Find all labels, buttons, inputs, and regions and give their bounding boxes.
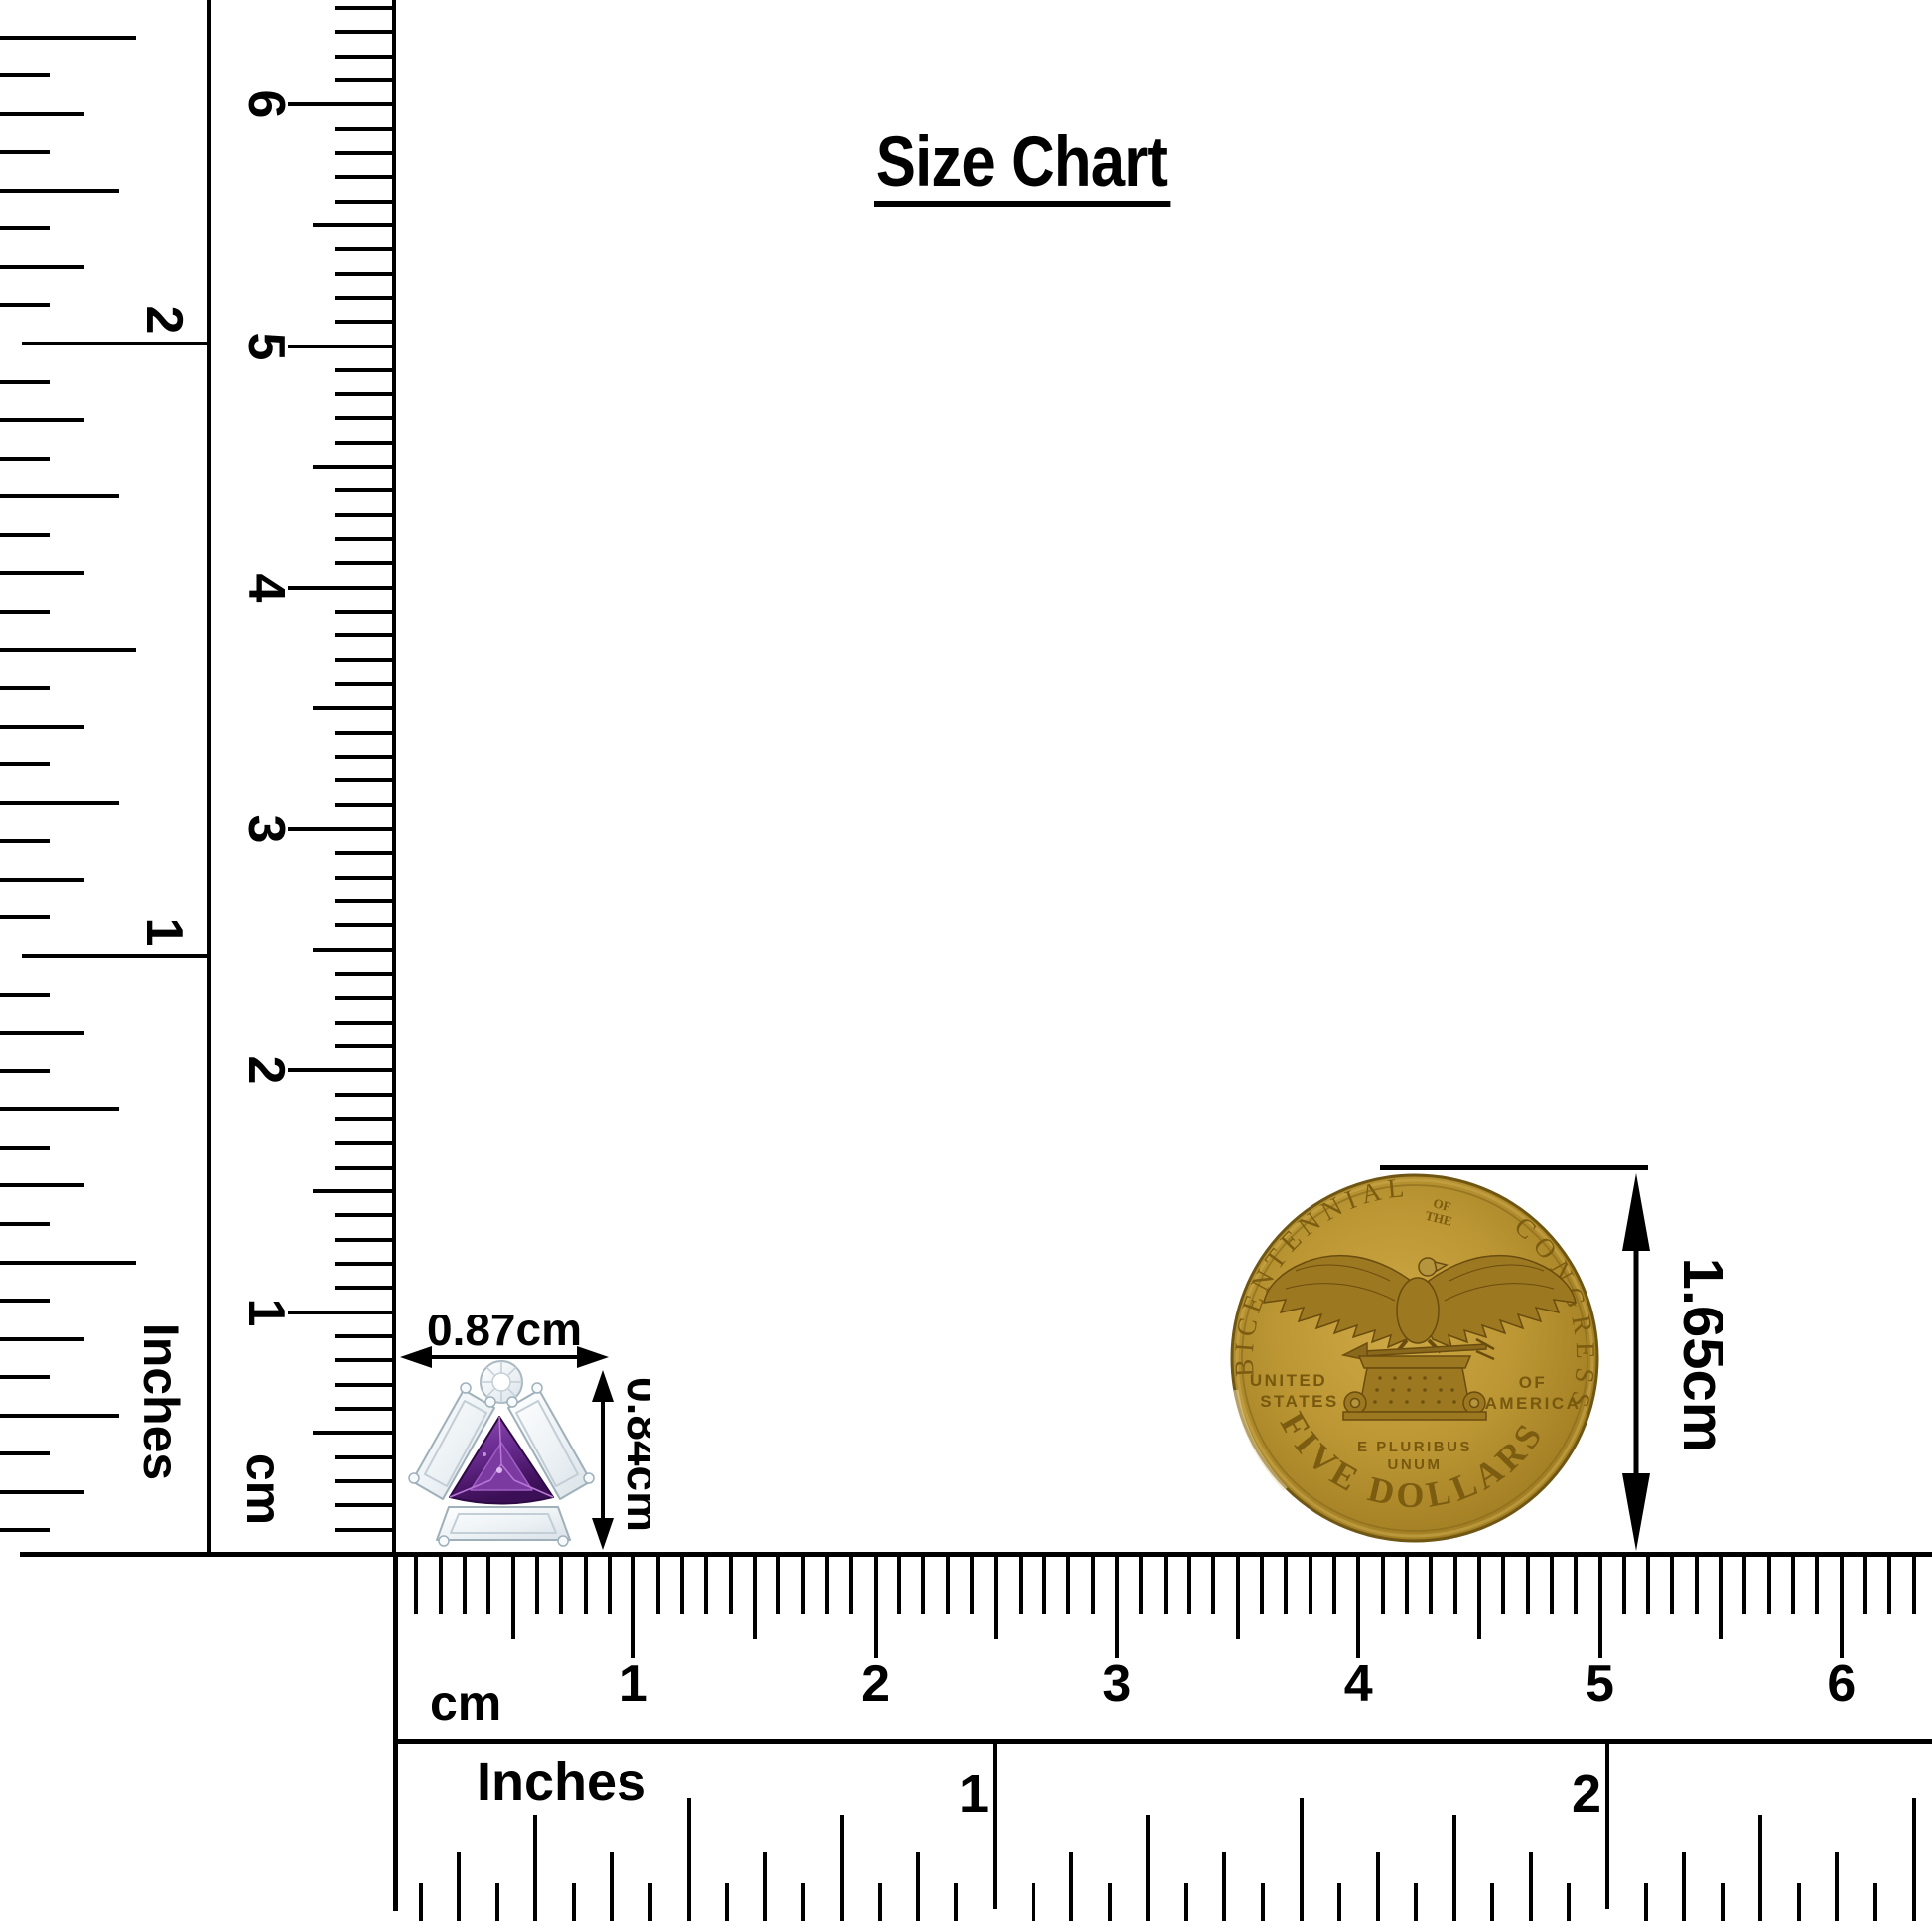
ruler-tick	[0, 226, 50, 230]
ruler-tick	[1767, 1557, 1771, 1614]
ruler-tick	[1108, 1883, 1112, 1921]
ruler-tick	[1742, 1557, 1746, 1614]
ruler-tick	[335, 755, 396, 759]
ruler-tick	[0, 839, 50, 843]
round-diamond-stone	[481, 1361, 522, 1403]
ruler-tick	[1873, 1883, 1877, 1921]
ruler-bottom-inches-unit-label: Inches	[477, 1755, 646, 1809]
coin-height-label: 1.65cm	[1671, 1258, 1723, 1453]
size-chart-page: { "title": { "text": "Size Chart" }, "ru…	[0, 0, 1932, 1932]
ruler-tick	[335, 247, 396, 251]
ruler-tick	[1146, 1815, 1150, 1921]
ruler-tick	[288, 827, 396, 831]
svg-text:E PLURIBUS: E PLURIBUS	[1357, 1439, 1472, 1455]
ruler-tick	[335, 876, 396, 880]
ruler-tick	[335, 778, 396, 782]
ruler-tick	[1682, 1852, 1686, 1921]
ruler-tick	[0, 1414, 119, 1418]
ruler-tick	[1863, 1557, 1867, 1614]
ruler-tick	[0, 878, 84, 882]
ruler-tick	[687, 1798, 691, 1921]
ruler-tick	[0, 1146, 50, 1150]
ruler-tick	[1622, 1557, 1626, 1614]
ruler-tick	[1526, 1557, 1530, 1614]
ruler-tick	[1644, 1883, 1648, 1921]
ruler-tick	[0, 265, 84, 269]
ruler-tick	[335, 1093, 396, 1097]
ruler-tick	[801, 1557, 805, 1614]
ruler-number: 6	[1827, 1658, 1856, 1710]
earring-height-dimension-arrow	[592, 1370, 614, 1550]
ruler-tick	[1032, 1883, 1035, 1921]
ruler-tick	[916, 1852, 920, 1921]
ruler-tick	[335, 513, 396, 517]
ruler-tick	[1529, 1852, 1533, 1921]
earring-width-label: 0.87cm	[427, 1315, 582, 1355]
ruler-tick	[680, 1557, 684, 1614]
ruler-tick	[335, 368, 396, 372]
ruler-tick	[1719, 1557, 1723, 1639]
ruler-tick	[335, 658, 396, 662]
ruler-tick	[0, 915, 50, 919]
ruler-tick	[335, 561, 396, 565]
ruler-tick	[1184, 1883, 1188, 1921]
ruler-tick	[1835, 1852, 1839, 1921]
ruler-tick	[335, 899, 396, 903]
ruler-tick	[313, 223, 396, 227]
ruler-left-cm: cm 123456	[211, 0, 396, 1564]
ruler-tick	[1695, 1557, 1699, 1614]
ruler-tick	[313, 465, 396, 469]
ruler-tick	[486, 1557, 490, 1614]
ruler-tick	[1429, 1557, 1433, 1614]
ruler-number: 4	[240, 573, 292, 602]
ruler-tick	[533, 1815, 537, 1921]
ruler-tick	[648, 1883, 652, 1921]
ruler-tick	[610, 1852, 614, 1921]
ruler-tick	[946, 1557, 950, 1614]
gold-coin: BICENTENNIAL CONGRESS OF THE FIVE DOLLAR…	[1229, 1173, 1601, 1541]
svg-text:STATES: STATES	[1260, 1392, 1339, 1411]
ruler-number: 4	[1344, 1658, 1373, 1710]
ruler-tick	[335, 441, 396, 445]
ruler-tick	[840, 1815, 844, 1921]
ruler-tick	[1550, 1557, 1554, 1614]
ruler-tick	[0, 1375, 50, 1379]
ruler-tick	[993, 1739, 997, 1909]
ruler-tick	[335, 272, 396, 276]
ruler-tick	[1284, 1557, 1288, 1614]
ruler-tick	[1887, 1557, 1891, 1614]
ruler-left-inches-unit-label: Inches	[136, 1323, 186, 1480]
ruler-tick	[1356, 1557, 1360, 1658]
ruler-tick	[288, 102, 396, 106]
ruler-tick	[0, 150, 50, 154]
ruler-tick	[849, 1557, 853, 1614]
ruler-tick	[1309, 1557, 1312, 1614]
ruler-tick	[1477, 1557, 1481, 1639]
ruler-tick	[1300, 1798, 1304, 1921]
ruler-tick	[572, 1883, 576, 1921]
ruler-tick	[0, 801, 119, 805]
ruler-tick	[0, 610, 50, 614]
ruler-tick	[0, 648, 136, 652]
ruler-tick	[0, 1183, 84, 1187]
ruler-tick	[878, 1883, 882, 1921]
ruler-tick	[0, 457, 50, 461]
ruler-tick	[495, 1883, 499, 1921]
ruler-tick	[1815, 1557, 1819, 1614]
ruler-tick	[608, 1557, 612, 1614]
ruler-tick	[335, 127, 396, 131]
ruler-tick	[0, 1299, 50, 1303]
ruler-tick	[1501, 1557, 1505, 1614]
ruler-tick	[335, 1141, 396, 1145]
ruler-tick	[763, 1852, 767, 1921]
ruler-tick	[335, 633, 396, 637]
ruler-tick	[335, 1044, 396, 1048]
ruler-tick	[335, 55, 396, 59]
ruler-tick	[1721, 1883, 1725, 1921]
ruler-tick	[0, 1528, 50, 1532]
ruler-tick	[335, 151, 396, 155]
ruler-tick	[0, 1222, 50, 1226]
ruler-tick	[335, 200, 396, 204]
ruler-tick	[0, 1107, 119, 1111]
ruler-tick	[1670, 1557, 1674, 1614]
ruler-number: 2	[240, 1056, 292, 1085]
ruler-tick	[0, 1069, 50, 1073]
ruler-tick	[584, 1557, 588, 1614]
ruler-tick	[1381, 1557, 1385, 1614]
earring-stones	[409, 1361, 594, 1546]
ruler-tick	[0, 73, 50, 77]
ruler-tick	[335, 923, 396, 927]
ruler-tick	[0, 1261, 136, 1265]
ruler-tick	[1490, 1883, 1494, 1921]
ruler-tick	[704, 1557, 708, 1614]
ruler-tick	[1912, 1798, 1916, 1921]
coin-figure: BICENTENNIAL CONGRESS OF THE FIVE DOLLAR…	[1226, 1162, 1723, 1559]
ruler-number: 2	[861, 1658, 890, 1710]
ruler-tick	[874, 1557, 878, 1658]
ruler-tick	[0, 686, 50, 690]
ruler-tick	[1042, 1557, 1046, 1614]
ruler-tick	[1211, 1557, 1215, 1614]
ruler-tick	[825, 1557, 829, 1614]
ruler-tick	[335, 682, 396, 686]
ruler-tick	[1139, 1557, 1143, 1614]
ruler-tick	[1414, 1883, 1418, 1921]
ruler-bottom-cm-unit-label: cm	[430, 1678, 501, 1727]
ruler-tick	[1337, 1883, 1341, 1921]
ruler-tick	[801, 1883, 805, 1921]
ruler-tick	[954, 1883, 958, 1921]
ruler-tick	[1019, 1557, 1023, 1614]
ruler-number: 1	[959, 1767, 989, 1821]
ruler-tick	[1598, 1557, 1602, 1658]
svg-text:UNITED: UNITED	[1250, 1371, 1327, 1390]
ruler-tick	[288, 345, 396, 348]
ruler-left-cm-unit-label: cm	[239, 1453, 289, 1525]
ruler-tick	[1452, 1815, 1456, 1921]
ruler-tick	[0, 762, 50, 766]
ruler-tick	[335, 537, 396, 541]
ruler-tick	[335, 6, 396, 10]
ruler-tick	[335, 1262, 396, 1266]
ruler-tick	[0, 533, 50, 537]
ruler-bottom-inches: Inches 12	[395, 1739, 1932, 1932]
ruler-tick	[0, 1451, 50, 1455]
earring-figure: 0.87cm 0.84cm	[387, 1315, 650, 1554]
ruler-tick	[1376, 1852, 1380, 1921]
ruler-tick	[335, 1021, 396, 1025]
ruler-number: 5	[1586, 1658, 1614, 1710]
ruler-tick	[335, 1213, 396, 1217]
ruler-tick	[753, 1557, 757, 1639]
ruler-tick	[0, 1337, 84, 1341]
ruler-tick	[335, 1117, 396, 1121]
ruler-tick	[535, 1557, 539, 1614]
ruler-tick	[1115, 1557, 1119, 1658]
ruler-number: 5	[240, 332, 292, 360]
ruler-tick	[725, 1883, 729, 1921]
ruler-tick	[288, 1068, 396, 1072]
ruler-tick	[1791, 1557, 1795, 1614]
ruler-tick	[313, 1189, 396, 1193]
ruler-tick	[439, 1557, 443, 1614]
ruler-tick	[288, 1311, 396, 1314]
ruler-tick	[335, 851, 396, 855]
ruler-tick	[729, 1557, 733, 1614]
ruler-tick	[1091, 1557, 1095, 1614]
ruler-tick	[970, 1557, 974, 1614]
ruler-tick	[457, 1852, 461, 1921]
ruler-tick	[559, 1557, 563, 1614]
ruler-tick	[335, 175, 396, 179]
svg-text:OF: OF	[1519, 1373, 1548, 1392]
ruler-tick	[0, 1490, 84, 1494]
ruler-tick	[335, 1238, 396, 1242]
ruler-tick	[897, 1557, 901, 1614]
ruler-tick	[1574, 1557, 1578, 1614]
ruler-tick	[0, 494, 119, 498]
ruler-tick	[1646, 1557, 1650, 1614]
ruler-number: 1	[240, 1298, 292, 1326]
ruler-tick	[1605, 1739, 1609, 1909]
ruler-number: 3	[1102, 1658, 1131, 1710]
ruler-tick	[0, 303, 50, 307]
ruler-tick	[335, 416, 396, 420]
ruler-tick	[463, 1557, 467, 1614]
ruler-tick	[335, 972, 396, 976]
ruler-tick	[1260, 1557, 1264, 1614]
ruler-tick	[631, 1557, 635, 1658]
ruler-tick	[335, 731, 396, 735]
ruler-tick	[313, 948, 396, 952]
ruler-tick	[1405, 1557, 1409, 1614]
ruler-number: 1	[138, 918, 190, 947]
ruler-tick	[335, 296, 396, 300]
ruler-tick	[511, 1557, 515, 1639]
ruler-number: 3	[240, 815, 292, 844]
ruler-tick	[0, 112, 84, 116]
ruler-tick	[1797, 1883, 1801, 1921]
ruler-tick	[776, 1557, 780, 1614]
page-title: Size Chart	[874, 127, 1171, 207]
ruler-tick	[0, 725, 84, 729]
ruler-tick	[994, 1557, 998, 1639]
ruler-tick	[1187, 1557, 1191, 1614]
ruler-bottom-cm: cm 123456	[395, 1557, 1932, 1739]
ruler-tick	[22, 954, 209, 958]
ruler-number: 2	[1572, 1767, 1601, 1821]
ruler-tick	[1069, 1852, 1073, 1921]
ruler-tick	[335, 610, 396, 614]
ruler-tick	[1912, 1557, 1916, 1614]
ruler-tick	[1453, 1557, 1457, 1614]
bottom-baguette-stone	[437, 1507, 570, 1540]
ruler-left-inches: Inches 12	[0, 0, 215, 1564]
ruler-tick	[335, 803, 396, 807]
ruler-tick	[313, 706, 396, 710]
ruler-tick	[1332, 1557, 1336, 1614]
ruler-tick	[335, 1166, 396, 1170]
ruler-tick	[1222, 1852, 1226, 1921]
ruler-tick	[0, 380, 50, 384]
ruler-tick	[656, 1557, 660, 1614]
svg-text:AMERICA: AMERICA	[1485, 1394, 1582, 1413]
ruler-number: 1	[620, 1658, 648, 1710]
ruler-tick	[335, 488, 396, 492]
ruler-tick	[1840, 1557, 1844, 1658]
ruler-tick	[288, 586, 396, 590]
ruler-tick	[335, 30, 396, 34]
ruler-number: 6	[240, 90, 292, 119]
ruler-tick	[0, 36, 136, 40]
ruler-tick	[0, 418, 84, 422]
ruler-tick	[335, 78, 396, 82]
ruler-tick	[921, 1557, 925, 1614]
ruler-tick	[1567, 1883, 1571, 1921]
ruler-number: 2	[138, 306, 190, 335]
ruler-tick	[335, 320, 396, 324]
ruler-tick	[1164, 1557, 1168, 1614]
ruler-tick	[1066, 1557, 1070, 1614]
ruler-tick	[0, 993, 50, 997]
ruler-tick	[0, 571, 84, 575]
ruler-tick	[335, 1286, 396, 1290]
svg-text:UNUM: UNUM	[1388, 1456, 1443, 1473]
ruler-tick	[335, 392, 396, 396]
ruler-tick	[1758, 1815, 1762, 1921]
ruler-tick	[313, 1431, 396, 1435]
ruler-tick	[414, 1557, 418, 1614]
ruler-tick	[0, 1031, 84, 1035]
earring-height-label: 0.84cm	[619, 1377, 650, 1532]
ruler-tick	[1236, 1557, 1240, 1639]
ruler-tick	[0, 189, 119, 193]
ruler-tick	[419, 1883, 423, 1921]
ruler-tick	[335, 996, 396, 1000]
ruler-tick	[22, 342, 209, 345]
ruler-tick	[1261, 1883, 1265, 1921]
